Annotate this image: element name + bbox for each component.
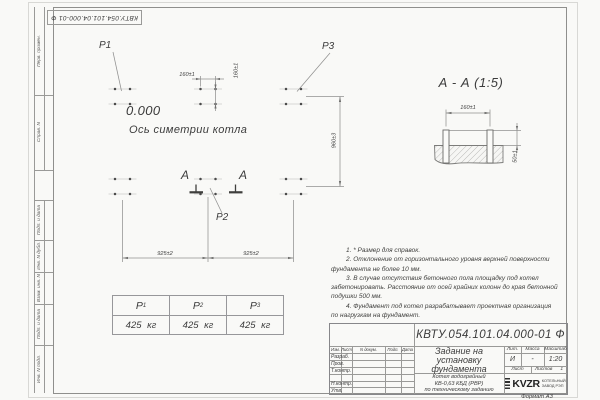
note-line: по нагрузкам на фундамент. [331,311,561,320]
note-line: подушки 500 мм. [331,292,561,301]
title-block-line [330,374,414,375]
drawing-subtitle-line: КВ-0,63 КБД (РВР) [414,381,504,388]
dim-bolt-protrusion: 50±1 [513,144,520,168]
note-line: 1. * Размер для справок. [331,246,561,255]
lit-label: Лит. [504,346,521,353]
note-line: 4. Фундамент под котел разрабатывает про… [331,302,561,311]
mass-value: - [521,353,544,366]
title-block: КВТУ.054.101.04.000-01 Ф Задание на уста… [329,323,568,395]
notes: 1. * Размер для справок. 2. Отклонение о… [331,246,561,320]
note-line: 3. В случае отсутствия бетонного пола пл… [331,274,561,283]
drawing-subtitle: Котел водогрейный КВ-0,63 КБД (РВР) по т… [414,374,504,394]
load-symbol-sub: 3 [257,303,260,309]
manufacturer-logo: KVZR КОТЕЛЬНЫЙ ЗАВОД РЭП [504,373,567,394]
row-tkontr: Т.контр. [331,368,351,374]
dim-section-bolt-spacing: 160±1 [455,105,481,111]
row-nkontr: Н.контр. [331,381,352,387]
header-data: Дата [401,346,414,353]
kvzr-logo-text: KVZR [512,378,539,390]
sheets-value: 1 [560,367,563,372]
load-table-column: P1 425 кг [113,296,170,334]
note-line: забетонировать. Расстояние от осей крайн… [331,283,561,292]
load-table-header: P1 [113,296,169,316]
format-label: Формат А3 [497,394,577,400]
scale-value: 1:20 [544,353,567,366]
load-table-header: P3 [227,296,283,316]
logo-caption-line: ЗАВОД РЭП [542,384,566,388]
doc-number: КВТУ.054.101.04.000-01 Ф [414,324,567,346]
drawing-title: Задание на установку фундамента [414,347,504,373]
load-symbol: P [136,300,143,312]
sheet-label: Лист [504,366,531,373]
header-list: Лист [341,346,352,353]
load-table-value: 425 кг [170,316,226,334]
title-block-line [330,387,414,388]
load-symbol-sub: 1 [143,303,146,309]
dim-span-right: 925±2 [236,251,266,257]
anchor-bolt-left [443,130,449,163]
lit-value: И [504,353,521,366]
load-table-value: 425 кг [113,316,169,334]
header-docnum: N докум. [352,346,385,353]
load-table-column: P3 425 кг [227,296,283,334]
note-line: 2. Отклонение от горизонтального уровня … [331,255,561,264]
load-symbol: P [193,300,200,312]
load-point-label-p1: P1 [99,40,111,51]
logo-caption-line: КОТЕЛЬНЫЙ [542,379,566,383]
section-cut-marks [190,185,243,193]
row-razrab: Разраб. [331,354,349,360]
sheets-cell: Листов 1 [531,366,567,373]
scale-label: Масштаб [544,346,567,353]
section-letter-right: А [239,168,247,182]
section-view-title: А - А (1:5) [430,75,512,90]
header-podp: Подп. [385,346,401,353]
boiler-symmetry-axis-label: Ось симетрии котла [129,124,247,136]
dim-span-left: 925±2 [150,251,180,257]
level-mark: 0.000 [126,103,161,118]
drawing-subtitle-line: по техническому заданию [414,387,504,394]
load-table-header: P2 [170,296,226,316]
section-letter-left: А [181,168,189,182]
drawing-sheet: Перв. примен. Справ. N Подп. и дата Инв.… [0,0,600,400]
header-izm: Изм. [330,346,341,353]
row-prov: Пров. [331,361,344,367]
note-line: фундамента не более 10 мм. [331,265,561,274]
load-symbol-sub: 2 [200,303,203,309]
anchor-bolt-right [487,130,493,163]
dim-bolt-spacing-y: 160±1 [234,58,241,84]
load-table: P1 425 кг P2 425 кг P3 425 кг [112,295,284,335]
dim-bolt-spacing-x: 160±1 [174,72,200,78]
kvzr-coil-icon [505,378,510,389]
load-point-label-p2: P2 [216,212,228,223]
mass-label: Масса [521,346,544,353]
dim-depth: 960±3 [332,126,339,156]
load-point-label-p3: P3 [322,41,334,52]
sheets-label: Листов [535,367,552,372]
kvzr-logo-caption: КОТЕЛЬНЫЙ ЗАВОД РЭП [542,379,566,388]
load-symbol: P [250,300,257,312]
load-table-value: 425 кг [227,316,283,334]
row-utv: Утв. [331,388,342,394]
drawing-title-line: фундамента [414,365,504,374]
load-table-column: P2 425 кг [170,296,227,334]
drawing-subtitle-line: Котел водогрейный [414,374,504,381]
